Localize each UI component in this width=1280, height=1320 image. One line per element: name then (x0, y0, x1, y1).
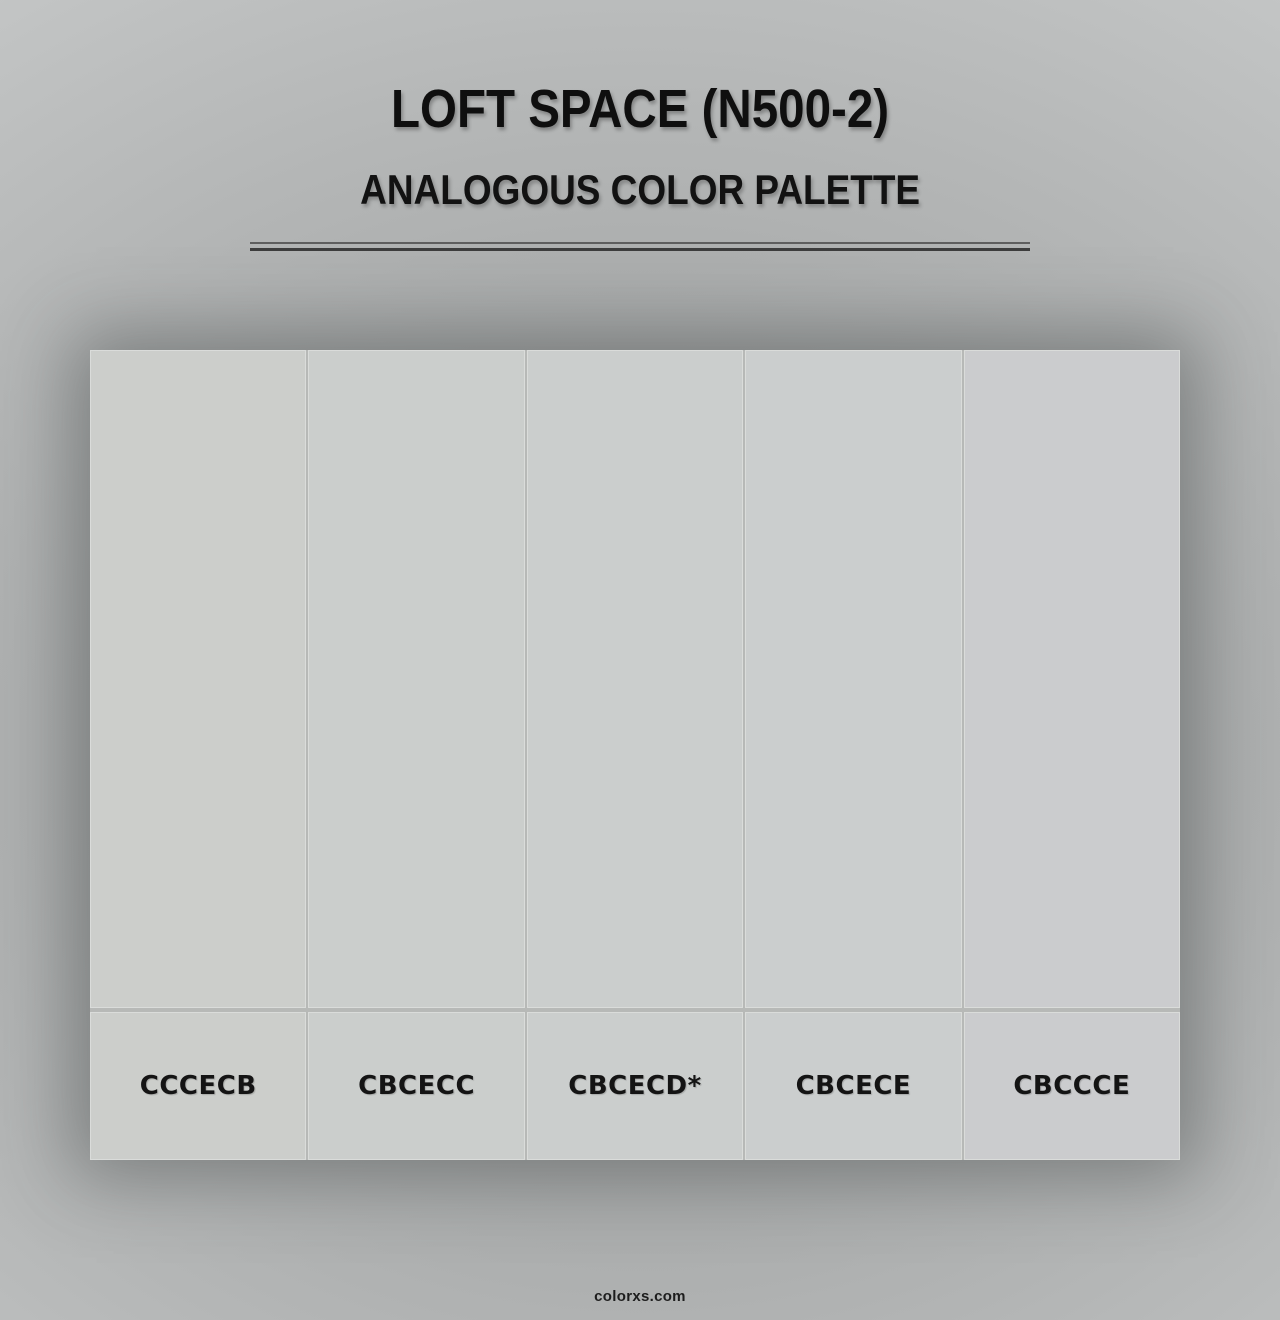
color-label-cell: CBCECE (745, 1012, 961, 1160)
color-swatch (527, 350, 743, 1008)
color-swatch (308, 350, 524, 1008)
color-hex-label: CBCCCE (1013, 1071, 1130, 1101)
color-label-cell: CBCECD* (527, 1012, 743, 1160)
poster-header: LOFT SPACE (N500-2) ANALOGOUS COLOR PALE… (0, 0, 1280, 251)
color-label-cell: CBCCCE (964, 1012, 1180, 1160)
color-label-cell: CBCECC (308, 1012, 524, 1160)
color-label-cell: CCCECB (90, 1012, 306, 1160)
color-hex-label: CCCECB (140, 1071, 257, 1101)
page-subtitle: ANALOGOUS COLOR PALETTE (360, 166, 920, 214)
color-hex-label-base: CBCECD* (568, 1071, 702, 1101)
color-swatch (90, 350, 306, 1008)
header-divider (250, 242, 1030, 251)
footer-brand: colorxs.com (594, 1288, 686, 1305)
poster-footer: colorxs.com (0, 1288, 1280, 1306)
page-subtitle-row: ANALOGOUS COLOR PALETTE (0, 166, 1280, 214)
color-hex-label: CBCECE (796, 1071, 912, 1101)
page-title: LOFT SPACE (N500-2) (391, 78, 889, 140)
color-swatch (964, 350, 1180, 1008)
palette-poster: LOFT SPACE (N500-2) ANALOGOUS COLOR PALE… (0, 0, 1280, 1320)
palette-grid: CCCECB CBCECC CBCECD* CBCECE CBCCCE (90, 350, 1180, 1160)
color-swatch (745, 350, 961, 1008)
color-hex-label: CBCECC (358, 1071, 475, 1101)
